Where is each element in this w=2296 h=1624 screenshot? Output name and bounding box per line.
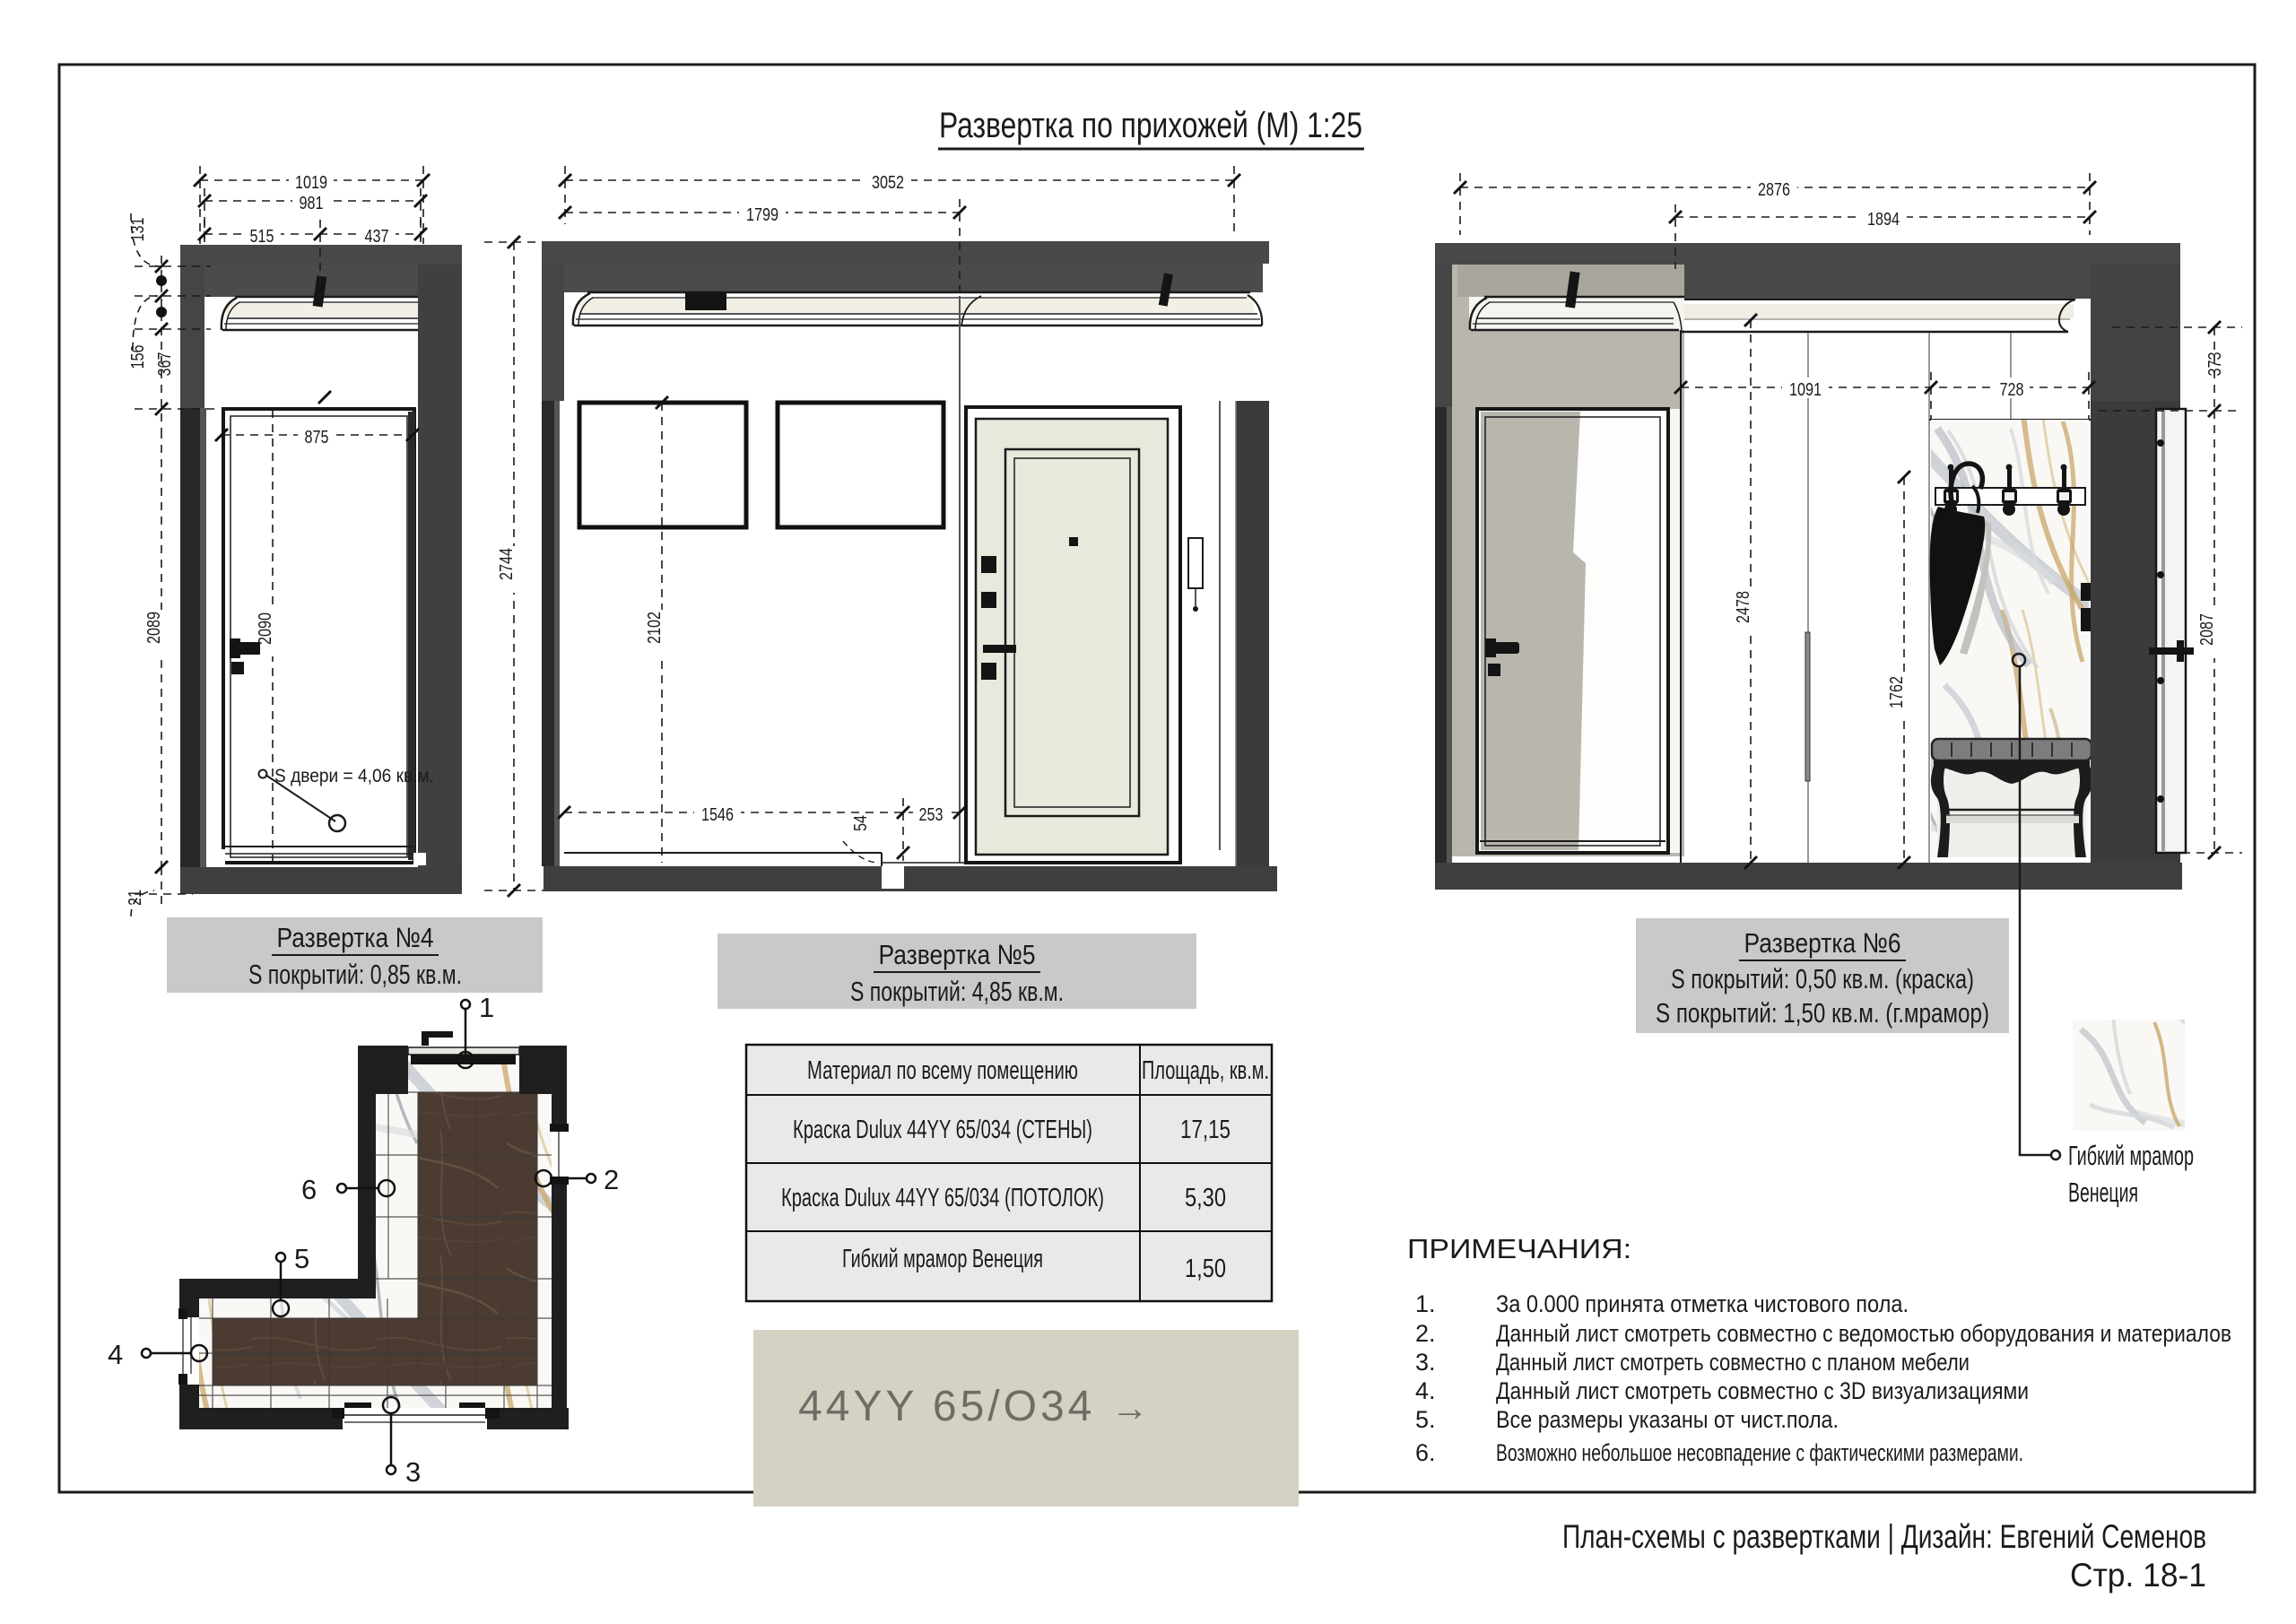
svg-text:5: 5 [294,1243,309,1274]
svg-text:1,50: 1,50 [1185,1255,1226,1283]
svg-text:За 0.000 принята отметка чисто: За 0.000 принята отметка чистового пола. [1496,1290,1909,1317]
svg-text:Данный лист смотреть совместно: Данный лист смотреть совместно с 3D визу… [1496,1377,2029,1404]
svg-text:2.: 2. [1415,1320,1436,1347]
svg-text:1762: 1762 [1887,676,1907,708]
svg-text:131: 131 [128,218,148,242]
svg-text:5.: 5. [1415,1406,1436,1433]
svg-text:2102: 2102 [645,612,665,644]
svg-text:2087: 2087 [2197,613,2217,646]
svg-text:Краска Dulux 44YY 65/034 (ПОТО: Краска Dulux 44YY 65/034 (ПОТОЛОК) [781,1184,1104,1212]
svg-text:437: 437 [365,227,389,247]
svg-text:1: 1 [479,992,494,1023]
svg-text:1.: 1. [1415,1290,1436,1317]
svg-text:2090: 2090 [256,612,275,645]
svg-text:1091: 1091 [1789,380,1822,400]
svg-text:1799: 1799 [746,205,778,225]
svg-text:ПРИМЕЧАНИЯ:: ПРИМЕЧАНИЯ: [1407,1233,1631,1264]
svg-text:981: 981 [300,194,324,213]
svg-text:3.: 3. [1415,1349,1436,1376]
svg-text:367: 367 [155,352,175,377]
svg-text:21: 21 [126,890,145,906]
svg-text:373: 373 [2205,352,2225,377]
svg-text:Данный лист смотреть совместно: Данный лист смотреть совместно с ведомос… [1496,1320,2231,1347]
svg-text:17,15: 17,15 [1180,1116,1231,1144]
svg-text:Краска Dulux 44YY 65/034 (СТЕН: Краска Dulux 44YY 65/034 (СТЕНЫ) [793,1116,1092,1144]
svg-text:3052: 3052 [872,173,904,193]
svg-text:Гибкий мрамор: Гибкий мрамор [2068,1140,2194,1171]
svg-text:1019: 1019 [295,173,327,193]
svg-text:4.: 4. [1415,1377,1436,1404]
svg-text:5,30: 5,30 [1185,1184,1226,1212]
svg-text:Данный лист смотреть совместно: Данный лист смотреть совместно с планом … [1496,1349,1970,1376]
svg-text:253: 253 [919,805,944,825]
svg-text:1546: 1546 [701,805,734,825]
svg-text:Возможно небольшое несовпадени: Возможно небольшое несовпадение с фактич… [1496,1439,2023,1466]
svg-text:Развертка №6: Развертка №6 [1744,927,1901,959]
svg-text:Стр. 18-1: Стр. 18-1 [2070,1557,2206,1594]
svg-text:S покрытий: 4,85 кв.м.: S покрытий: 4,85 кв.м. [850,976,1064,1007]
svg-text:2: 2 [604,1164,619,1195]
svg-text:6.: 6. [1415,1439,1436,1466]
svg-text:Материал по всему помещению: Материал по всему помещению [807,1056,1078,1085]
svg-text:Развертка №5: Развертка №5 [879,939,1036,970]
svg-text:3: 3 [405,1456,421,1488]
svg-text:515: 515 [250,227,274,247]
svg-text:Площадь, кв.м.: Площадь, кв.м. [1142,1056,1269,1085]
svg-text:S покрытий: 0,50 кв.м. (краска: S покрытий: 0,50 кв.м. (краска) [1671,963,1974,994]
svg-text:Развертка по прихожей (М) 1:25: Развертка по прихожей (М) 1:25 [939,106,1362,145]
svg-text:S двери = 4,06 кв.м.: S двери = 4,06 кв.м. [274,766,434,786]
svg-text:2744: 2744 [497,548,517,580]
svg-text:S покрытий: 1,50 кв.м. (г.мрам: S покрытий: 1,50 кв.м. (г.мрамор) [1656,997,1989,1029]
svg-text:6: 6 [301,1174,317,1205]
svg-text:1894: 1894 [1867,210,1900,230]
svg-text:2089: 2089 [144,612,164,644]
svg-text:54: 54 [851,815,871,831]
svg-text:2478: 2478 [1734,591,1753,623]
svg-text:Гибкий мрамор Венеция: Гибкий мрамор Венеция [842,1245,1043,1273]
svg-text:S покрытий: 0,85 кв.м.: S покрытий: 0,85 кв.м. [248,959,462,990]
svg-text:4: 4 [108,1339,123,1370]
svg-text:156: 156 [128,345,148,369]
svg-text:2876: 2876 [1758,180,1790,200]
svg-text:875: 875 [305,428,329,447]
svg-text:Развертка №4: Развертка №4 [277,922,434,953]
svg-text:План-схемы с развертками | Диз: План-схемы с развертками | Дизайн: Евген… [1562,1518,2206,1555]
svg-text:44YY 65/O34 →: 44YY 65/O34 → [798,1383,1152,1430]
svg-text:Все размеры указаны от чист.по: Все размеры указаны от чист.пола. [1496,1406,1839,1433]
svg-text:728: 728 [2000,380,2024,400]
svg-text:Венеция: Венеция [2068,1177,2138,1208]
